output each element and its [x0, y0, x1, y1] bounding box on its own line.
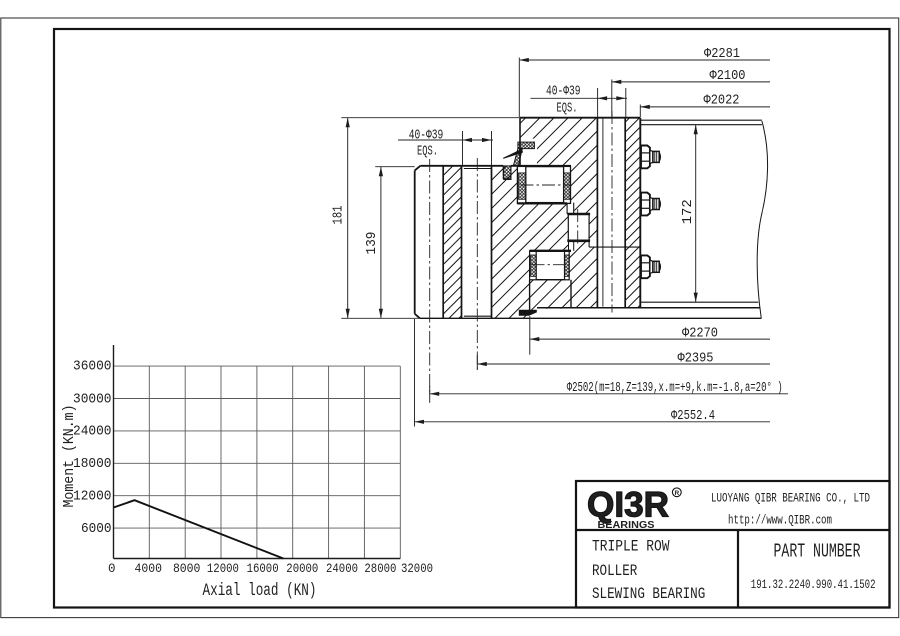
- svg-text:QI3R: QI3R: [587, 486, 669, 525]
- svg-text:PART NUMBER: PART NUMBER: [774, 540, 861, 562]
- svg-text:172: 172: [681, 199, 696, 224]
- svg-text:Axial load (KN): Axial load (KN): [203, 581, 317, 601]
- svg-text:SLEWING BEARING: SLEWING BEARING: [592, 585, 705, 603]
- svg-text:EQS.: EQS.: [417, 145, 438, 160]
- svg-text:Φ2022: Φ2022: [704, 93, 740, 108]
- svg-text:BEARINGS: BEARINGS: [598, 520, 655, 531]
- svg-text:EQS.: EQS.: [557, 102, 578, 117]
- svg-text:R: R: [675, 490, 680, 497]
- svg-text:12000: 12000: [207, 562, 239, 576]
- svg-text:18000: 18000: [73, 457, 112, 472]
- svg-text:Φ2281: Φ2281: [704, 47, 740, 62]
- svg-text:Φ2552.4: Φ2552.4: [671, 409, 715, 424]
- svg-text:24000: 24000: [326, 562, 358, 576]
- svg-text:32000: 32000: [401, 562, 433, 576]
- svg-text:LUOYANG QIBR BEARING CO., LTD: LUOYANG QIBR BEARING CO., LTD: [711, 491, 870, 506]
- svg-text:30000: 30000: [73, 393, 112, 408]
- svg-text:8000: 8000: [173, 562, 201, 576]
- svg-text:Φ2270: Φ2270: [682, 326, 718, 341]
- svg-text:TRIPLE ROW: TRIPLE ROW: [592, 538, 670, 556]
- svg-text:Φ2100: Φ2100: [710, 69, 746, 84]
- svg-text:36000: 36000: [73, 360, 112, 375]
- svg-text:6000: 6000: [81, 522, 112, 537]
- svg-text:12000: 12000: [73, 490, 112, 505]
- svg-text:16000: 16000: [247, 562, 279, 576]
- svg-text:4000: 4000: [135, 562, 163, 576]
- svg-text:24000: 24000: [73, 425, 112, 440]
- svg-text:139: 139: [365, 232, 380, 255]
- svg-text:191.32.2240.990.41.1502: 191.32.2240.990.41.1502: [751, 577, 876, 592]
- svg-text:20000: 20000: [286, 562, 318, 576]
- svg-text:40-Φ39: 40-Φ39: [409, 128, 444, 143]
- svg-text:28000: 28000: [364, 562, 396, 576]
- svg-text:0: 0: [108, 562, 116, 576]
- svg-text:Φ2395: Φ2395: [678, 351, 714, 366]
- svg-text:ROLLER: ROLLER: [592, 562, 637, 580]
- svg-text:181: 181: [332, 206, 347, 225]
- svg-text:Moment (KN.m): Moment (KN.m): [61, 405, 78, 508]
- svg-text:40-Φ39: 40-Φ39: [546, 85, 581, 100]
- svg-text:Φ2502(m=18,Z=139,x.m=+9,k.m=-1: Φ2502(m=18,Z=139,x.m=+9,k.m=-1.8,a=20° ): [567, 381, 783, 396]
- svg-text:http://www.QIBR.com: http://www.QIBR.com: [728, 513, 832, 528]
